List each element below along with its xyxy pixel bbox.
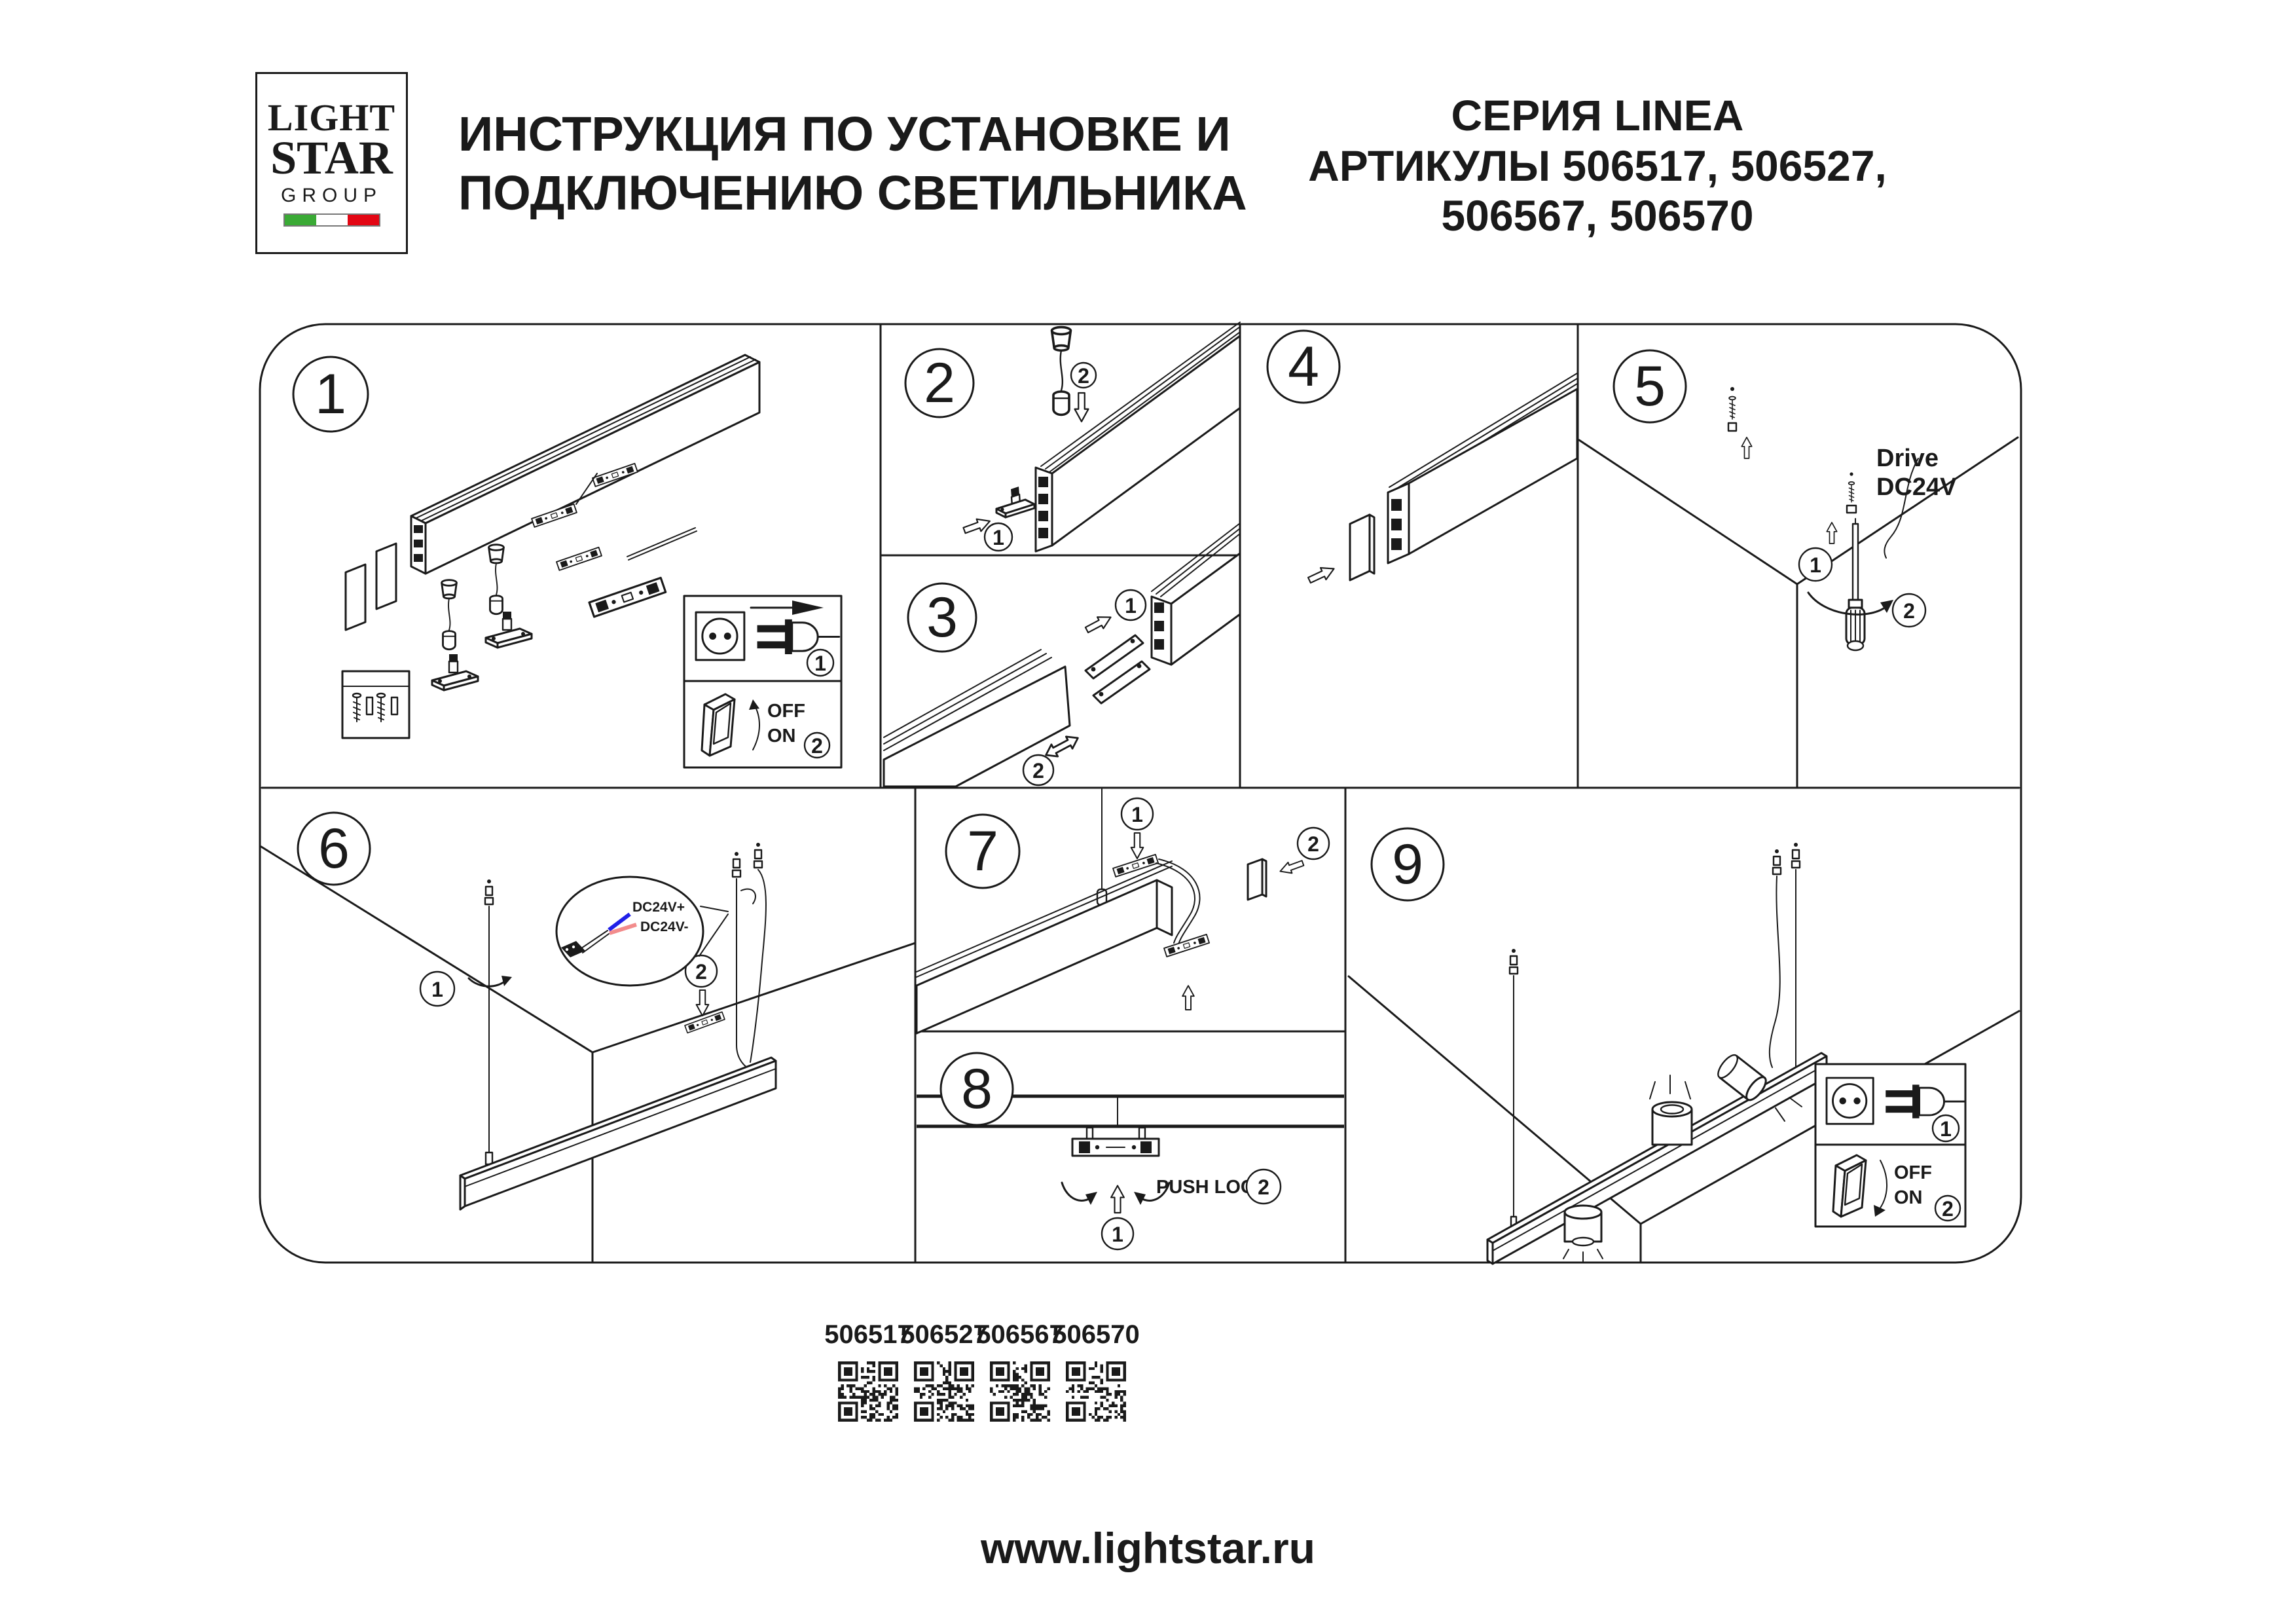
qr-label: 506567 [976, 1320, 1063, 1350]
panel-7-number: 7 [967, 820, 998, 883]
off-label: OFF [767, 701, 805, 722]
panel-9-number: 9 [1392, 833, 1423, 896]
panel-step-3: 3 [884, 523, 1240, 786]
panel-step-4: 4 [1267, 331, 1577, 586]
panel-2-number: 2 [924, 352, 955, 415]
qr-label: 506527 [900, 1320, 987, 1350]
connector-bracket-icon [589, 578, 666, 616]
qr-code-icon [990, 1361, 1050, 1422]
screw-anchor-icon [1728, 387, 1736, 431]
spotlight-icon [1563, 1206, 1603, 1261]
connector-bracket-icon [1113, 855, 1158, 877]
power-cord-icon [1770, 876, 1780, 1067]
wire-positive-label: DC24V+ [632, 900, 685, 915]
step-1-badge: 1 [1125, 594, 1137, 618]
led-profile-icon [1388, 373, 1577, 563]
step-1-badge: 1 [993, 526, 1004, 549]
end-cap-icon [346, 544, 396, 630]
qr-code-icon [838, 1361, 898, 1422]
light-bar-icon [460, 1058, 776, 1209]
qr-item: 506517 [838, 1320, 898, 1422]
instruction-sheet: LIGHT STAR GROUP ИНСТРУКЦИЯ ПО УСТАНОВКЕ… [0, 0, 2296, 1624]
screwdriver-icon [1846, 519, 1865, 650]
led-profile-icon [1152, 523, 1240, 665]
arrow-icon [1278, 858, 1305, 877]
connector-module-icon [1072, 1128, 1159, 1156]
panel-4-number: 4 [1288, 335, 1319, 398]
connector-bracket-icon [556, 547, 602, 570]
step-2-badge: 2 [1903, 599, 1915, 623]
led-profile-icon [917, 861, 1172, 1033]
suspension-cable-icon [1097, 789, 1106, 905]
switch-icon [702, 694, 735, 756]
panel-1-number: 1 [315, 363, 346, 426]
arrow-down-icon [697, 990, 709, 1016]
step-2-badge: 2 [695, 960, 707, 984]
step-1-badge: 1 [1810, 553, 1821, 577]
step-2-badge: 2 [1307, 832, 1319, 856]
spotlight-icon [1650, 1075, 1692, 1145]
panel-3-number: 3 [926, 586, 958, 649]
step-2-badge: 2 [1032, 759, 1044, 783]
cover-plate-icon [1248, 859, 1266, 900]
arrow-up-icon [1741, 437, 1751, 458]
joint-strip-icon [1085, 635, 1150, 703]
screw-anchor-icon [1847, 472, 1856, 513]
qr-item: 506570 [1066, 1320, 1126, 1422]
panel-step-9: 9 [1349, 828, 2019, 1264]
cord-hook [741, 889, 756, 904]
panel-step-5: 5 Drive DC24V 1 [1579, 350, 2018, 788]
arrow-icon [1084, 612, 1114, 636]
arrow-up-icon [1111, 1186, 1124, 1213]
panel-8-number: 8 [961, 1058, 993, 1120]
panel-step-7: 7 1 2 [917, 789, 1329, 1033]
panel-5-number: 5 [1634, 355, 1666, 418]
suspension-cable-icon [733, 843, 766, 1071]
ceiling-mount-icon [432, 654, 478, 690]
step-1-badge: 1 [814, 652, 826, 675]
power-inset-box: 1 OFF ON 2 [684, 596, 841, 767]
qr-item: 506567 [990, 1320, 1050, 1422]
qr-item: 506527 [914, 1320, 974, 1422]
step-2-badge: 2 [1942, 1197, 1954, 1221]
step-1-badge: 1 [1131, 803, 1143, 826]
switch-icon [1833, 1155, 1866, 1217]
screw-bag-icon [342, 671, 409, 738]
panel-step-2: 2 2 [905, 322, 1240, 551]
qr-code-icon [1066, 1361, 1126, 1422]
suspension-cable-icon [485, 879, 493, 1164]
connector-bracket-icon [1164, 934, 1209, 957]
on-label: ON [1894, 1187, 1923, 1208]
step-1-badge: 1 [431, 978, 443, 1001]
off-label: OFF [1894, 1162, 1932, 1183]
arrow-down-icon [1131, 833, 1144, 858]
step-1-badge: 1 [1940, 1117, 1952, 1141]
light-bar-icon [1487, 1053, 1827, 1264]
suspension-cable-icon [489, 545, 504, 614]
step-2-badge: 2 [1078, 364, 1089, 388]
arrow-up-icon [1182, 986, 1194, 1010]
led-profile-icon [1036, 322, 1240, 551]
arrow-up-icon [1827, 523, 1836, 544]
panel-step-8: 8 1 PUSH LOCK 2 [917, 1053, 1344, 1249]
step-2-badge: 2 [1258, 1175, 1269, 1199]
end-cap-icon [1350, 515, 1374, 580]
led-profile-icon [411, 355, 759, 574]
step-1-badge: 1 [1112, 1223, 1123, 1246]
qr-label: 506517 [824, 1320, 911, 1350]
panel-step-1: 1 [293, 355, 841, 767]
panel-step-6: 6 1 [261, 813, 915, 1261]
arrow-down-icon [1075, 393, 1089, 422]
drive-label-line1: Drive [1876, 445, 1939, 472]
ceiling-mount-icon [486, 612, 532, 648]
qr-label: 506570 [1052, 1320, 1139, 1350]
power-inset-box: 1 OFF ON 2 [1815, 1064, 1965, 1227]
qr-section: 506517 506527 506567 506570 [838, 1320, 1192, 1422]
ceiling-mount-icon [996, 487, 1034, 517]
qr-code-icon [914, 1361, 974, 1422]
website-url: www.lightstar.ru [0, 1523, 2296, 1573]
wire-negative-label: DC24V- [640, 919, 689, 934]
on-label: ON [767, 726, 796, 747]
suspension-cable-icon [1052, 327, 1071, 415]
panel-6-number: 6 [318, 817, 350, 880]
suspension-cable-icon [442, 580, 457, 650]
arrow-icon [1307, 563, 1337, 586]
drive-label-line2: DC24V [1876, 473, 1957, 501]
step-2-badge: 2 [811, 734, 823, 758]
